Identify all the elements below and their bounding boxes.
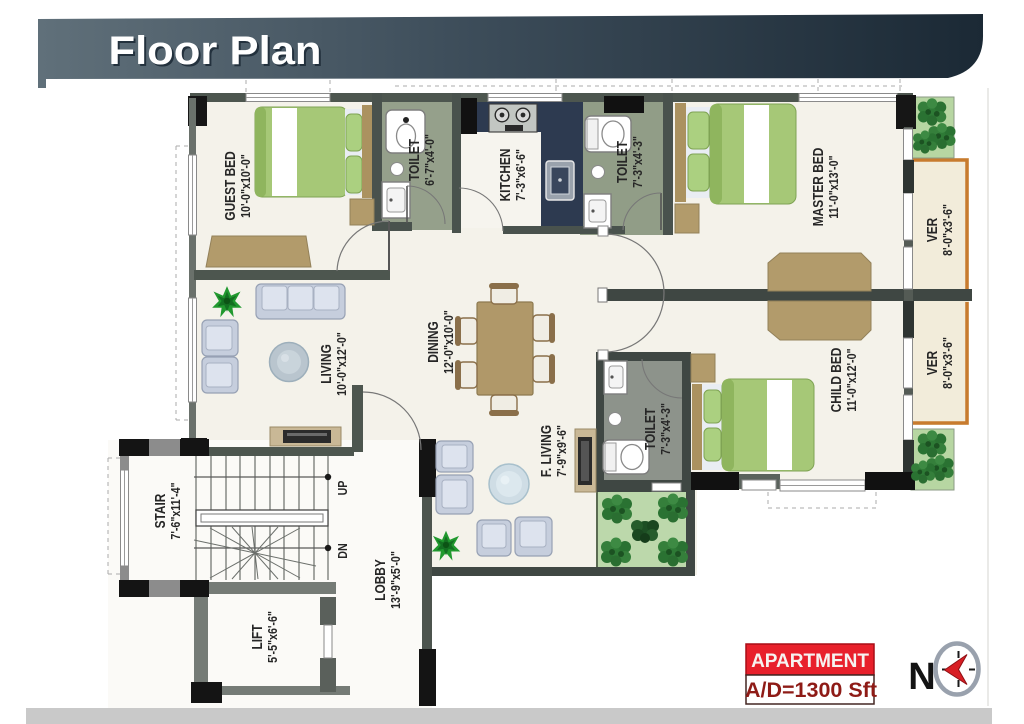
svg-text:7'-3"x4'-3": 7'-3"x4'-3": [658, 403, 673, 455]
svg-text:LIFT: LIFT: [249, 624, 265, 649]
svg-text:10'-0"x10'-0": 10'-0"x10'-0": [238, 154, 253, 218]
svg-text:N: N: [908, 656, 935, 698]
svg-text:11'-0"x12'-0": 11'-0"x12'-0": [844, 348, 859, 411]
svg-text:11'-0"x13'-0": 11'-0"x13'-0": [826, 155, 841, 218]
svg-text:A/D=1300 Sft: A/D=1300 Sft: [745, 678, 877, 702]
svg-text:CHILD BED: CHILD BED: [828, 347, 844, 412]
svg-text:LOBBY: LOBBY: [372, 559, 388, 601]
svg-text:F. LIVING: F. LIVING: [538, 425, 554, 477]
svg-text:TOILET: TOILET: [642, 408, 658, 450]
svg-text:GUEST BED: GUEST BED: [222, 151, 238, 221]
svg-text:Floor Plan: Floor Plan: [108, 28, 321, 73]
svg-text:8'-0"x3'-6": 8'-0"x3'-6": [940, 337, 955, 389]
svg-text:VER: VER: [924, 350, 940, 375]
svg-text:6'-7"x4'-0": 6'-7"x4'-0": [422, 134, 437, 186]
svg-text:7'-9"x9'-6": 7'-9"x9'-6": [554, 425, 569, 477]
svg-text:7'-3"x4'-3": 7'-3"x4'-3": [630, 136, 645, 188]
svg-text:DINING: DINING: [425, 321, 441, 363]
svg-text:10'-0"x12'-0": 10'-0"x12'-0": [334, 332, 349, 396]
svg-text:DN: DN: [335, 543, 350, 558]
svg-text:LIVING: LIVING: [318, 344, 334, 384]
svg-text:5'-5"x6'-6": 5'-5"x6'-6": [265, 611, 280, 663]
svg-text:7'-3"x6'-6": 7'-3"x6'-6": [513, 149, 528, 201]
svg-text:12'-0"x10'-0": 12'-0"x10'-0": [441, 310, 456, 374]
svg-text:VER: VER: [924, 217, 940, 242]
svg-text:MASTER BED: MASTER BED: [810, 147, 826, 226]
svg-text:TOILET: TOILET: [406, 139, 422, 181]
svg-text:7'-6"x11'-4": 7'-6"x11'-4": [168, 482, 183, 539]
svg-text:8'-0"x3'-6": 8'-0"x3'-6": [940, 204, 955, 256]
svg-text:STAIR: STAIR: [152, 493, 168, 528]
svg-text:UP: UP: [335, 481, 350, 496]
svg-text:TOILET: TOILET: [614, 141, 630, 183]
svg-text:KITCHEN: KITCHEN: [497, 149, 513, 202]
svg-text:APARTMENT: APARTMENT: [751, 651, 869, 672]
svg-text:13'-9"x5'-0": 13'-9"x5'-0": [388, 551, 403, 609]
